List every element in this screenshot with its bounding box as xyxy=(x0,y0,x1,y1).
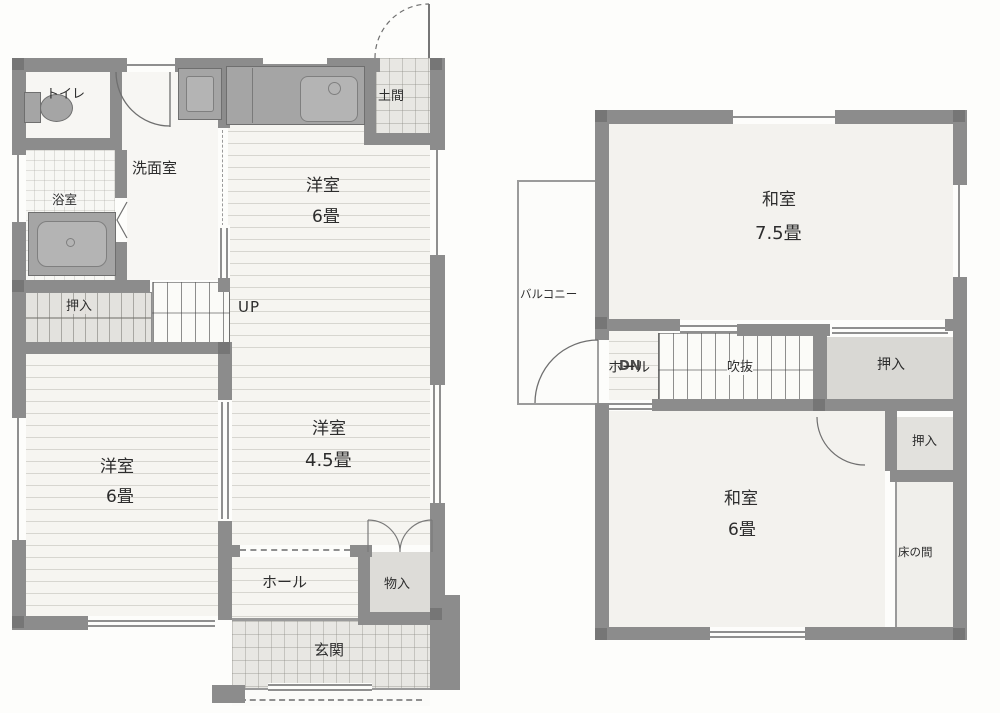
door-line xyxy=(609,403,652,405)
door-line xyxy=(680,331,737,333)
wall xyxy=(430,255,445,385)
door-line xyxy=(609,408,652,410)
wall xyxy=(115,242,127,280)
post xyxy=(218,342,230,354)
entrance-step-line xyxy=(232,618,358,621)
window xyxy=(88,616,215,630)
balcony-label: バルコニー xyxy=(520,288,577,301)
washroom-label: 洗面室 xyxy=(132,160,177,177)
wall xyxy=(364,58,376,133)
japanese-room-bottom-size: 6畳 xyxy=(728,521,756,540)
wall xyxy=(364,133,445,145)
western-room-left-floor xyxy=(26,354,218,616)
door-line xyxy=(680,325,737,327)
wall xyxy=(115,150,127,198)
window-line xyxy=(710,631,805,633)
wall xyxy=(652,399,967,411)
wall xyxy=(218,278,230,292)
wall xyxy=(595,319,680,331)
wall xyxy=(12,342,232,354)
wall xyxy=(953,277,967,640)
wall xyxy=(595,110,609,340)
closet-lower-label: 押入 xyxy=(912,434,937,448)
toilet-label: トイレ xyxy=(46,88,85,102)
post xyxy=(12,616,24,628)
window-line xyxy=(88,620,215,622)
room-mid-size: 4.5畳 xyxy=(305,451,352,471)
room-left-label: 洋室 xyxy=(100,458,134,477)
room-left-size: 6畳 xyxy=(106,488,134,507)
window xyxy=(953,185,967,277)
entry-dash-line xyxy=(240,699,422,701)
window xyxy=(12,418,26,540)
wall xyxy=(945,319,967,331)
stairs-up-label: UP xyxy=(238,299,260,316)
japanese-room-bottom-floor xyxy=(609,411,885,627)
post xyxy=(12,58,24,70)
window xyxy=(710,627,805,640)
door-line xyxy=(220,228,222,278)
window-line xyxy=(436,150,438,255)
wall xyxy=(230,545,240,557)
post xyxy=(813,399,825,411)
post xyxy=(430,58,442,70)
post xyxy=(595,317,607,329)
closet-upper-label: 押入 xyxy=(877,358,905,373)
window-line xyxy=(127,64,175,66)
window xyxy=(12,155,26,222)
japanese-room-top-floor xyxy=(609,124,953,320)
counter-divider-dashed xyxy=(222,130,223,226)
kitchen-faucet xyxy=(328,82,341,95)
wall xyxy=(890,470,967,482)
wall xyxy=(12,280,150,292)
wall xyxy=(805,627,967,640)
door-line xyxy=(268,684,372,686)
wall xyxy=(212,685,245,703)
hall-1f-label: ホール xyxy=(262,574,307,591)
japanese-room-top-size: 7.5畳 xyxy=(755,224,802,244)
door-line xyxy=(268,689,372,691)
wall xyxy=(885,411,897,471)
room-top-size: 6畳 xyxy=(312,208,340,227)
window-line xyxy=(958,185,960,277)
bathtub-drain xyxy=(66,238,75,247)
room-mid-label: 洋室 xyxy=(312,420,346,439)
wall xyxy=(218,354,232,400)
window-line xyxy=(710,636,805,638)
washbasin-bowl xyxy=(186,76,214,112)
wall xyxy=(12,222,26,418)
tokonoma-label: 床の間 xyxy=(898,546,933,559)
wall xyxy=(835,110,967,124)
window-line xyxy=(439,385,441,503)
entrance-label: 玄関 xyxy=(314,642,344,659)
window-line xyxy=(88,625,215,627)
post xyxy=(12,280,24,292)
wall xyxy=(358,550,370,620)
wall xyxy=(110,72,122,138)
post xyxy=(595,110,607,122)
wall xyxy=(595,627,710,640)
window-line xyxy=(433,385,435,503)
japanese-room-top-label: 和室 xyxy=(762,191,796,210)
wall xyxy=(595,403,609,640)
window-line xyxy=(17,418,19,540)
closet-1f-label: 押入 xyxy=(66,300,92,314)
window-line xyxy=(17,155,19,222)
wall xyxy=(358,612,440,625)
storage-label: 物入 xyxy=(384,578,410,592)
toilet-fixture xyxy=(24,92,41,123)
bath-label: 浴室 xyxy=(52,193,77,207)
door-line xyxy=(832,332,948,334)
door-line xyxy=(227,402,229,519)
tokonoma-line xyxy=(895,482,897,627)
japanese-room-bottom-label: 和室 xyxy=(724,490,758,509)
floorplan-canvas: トイレ 浴室 洗面室 土間 洋室 6畳 押入 UP 洋室 6畳 洋室 4.5畳 … xyxy=(0,0,1000,713)
room-top-label: 洋室 xyxy=(306,177,340,196)
door-line xyxy=(221,402,223,519)
wall xyxy=(595,110,733,124)
doma-label: 土間 xyxy=(378,90,404,104)
void-label: 吹抜 xyxy=(727,361,753,375)
stairs-dn-label: DN xyxy=(619,360,641,374)
door-line xyxy=(832,327,948,329)
post xyxy=(953,110,965,122)
post xyxy=(430,608,442,620)
door-line xyxy=(226,228,228,278)
bath-door-opening xyxy=(115,198,127,242)
room-divider-dashed xyxy=(240,549,350,551)
back-door-arc xyxy=(375,4,429,58)
post xyxy=(595,628,607,640)
wall xyxy=(12,138,122,150)
window-line xyxy=(733,116,835,118)
post xyxy=(953,628,965,640)
counter-line xyxy=(252,68,253,123)
wall xyxy=(218,521,232,620)
